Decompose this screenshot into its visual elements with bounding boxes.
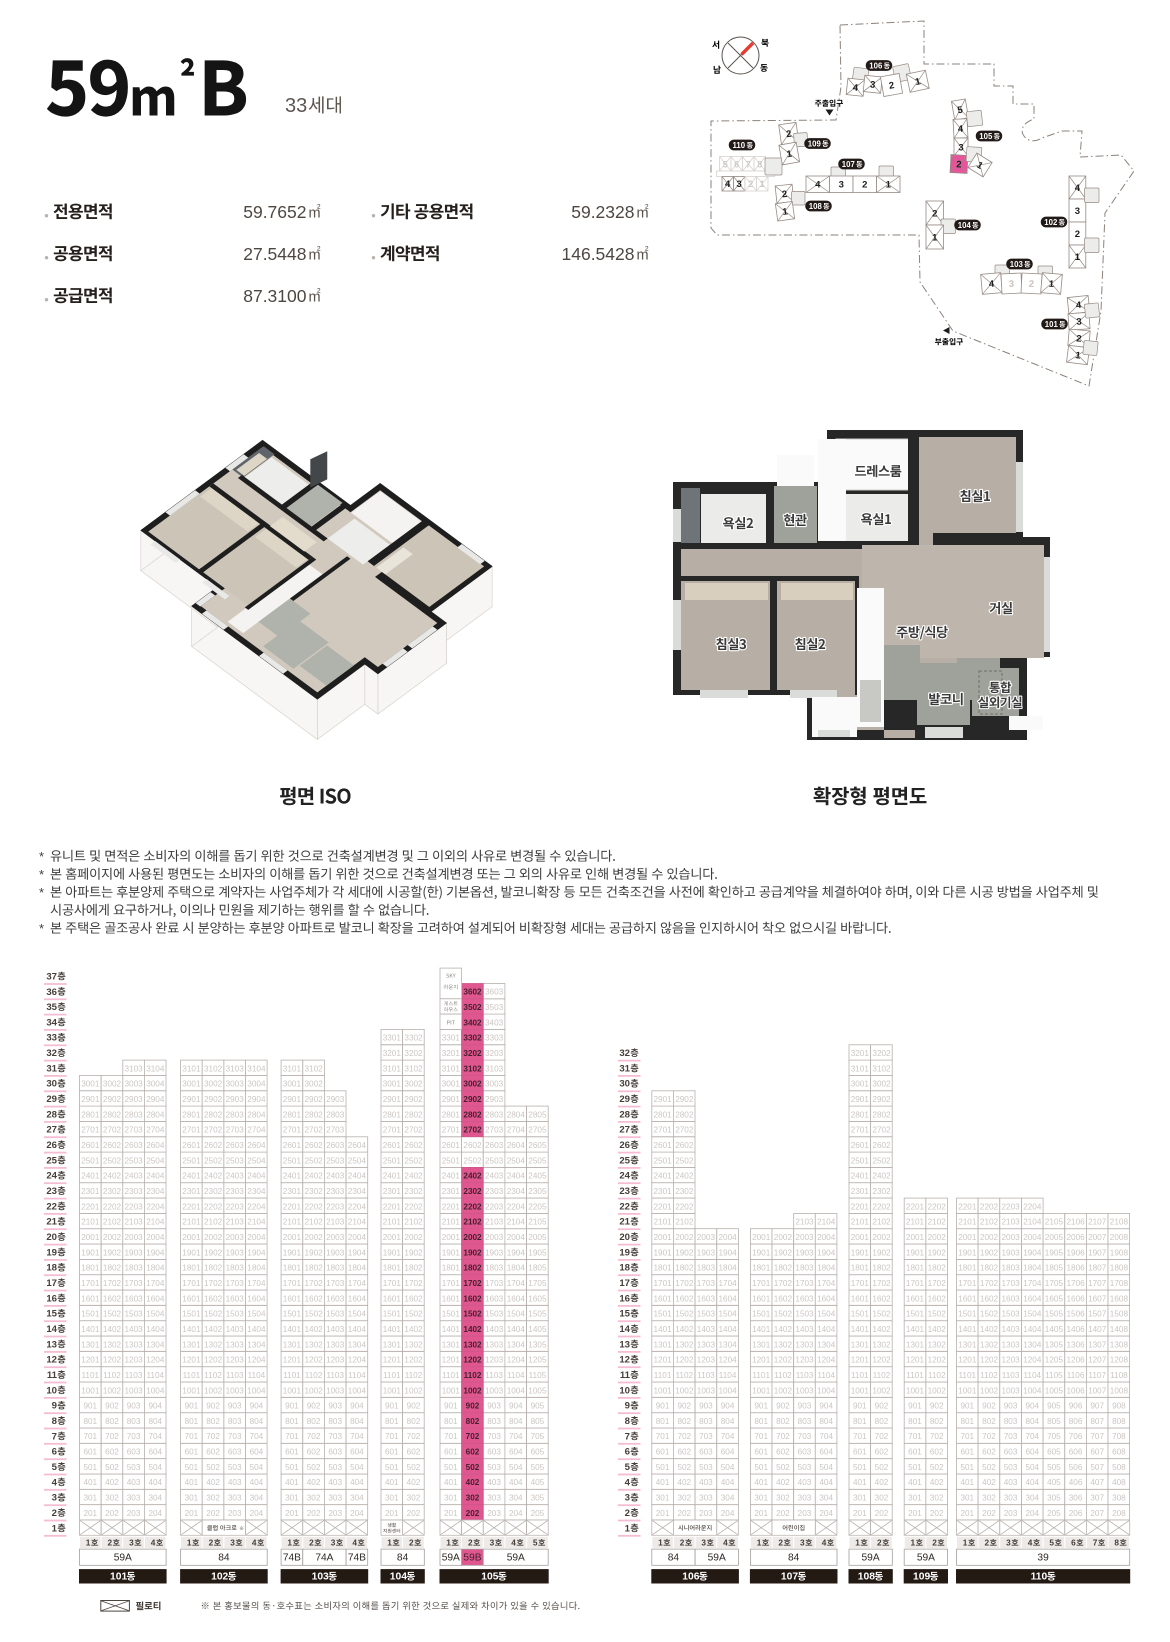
svg-text:1203: 1203 xyxy=(485,1356,504,1365)
svg-text:2601: 2601 xyxy=(182,1141,201,1150)
svg-text:2: 2 xyxy=(1075,229,1080,240)
svg-text:1801: 1801 xyxy=(653,1264,672,1273)
svg-text:1904: 1904 xyxy=(1023,1248,1042,1257)
svg-text:59A: 59A xyxy=(507,1553,525,1564)
svg-text:401: 401 xyxy=(754,1478,768,1487)
svg-text:5: 5 xyxy=(723,160,728,170)
svg-text:1: 1 xyxy=(387,1538,392,1548)
svg-text:508: 508 xyxy=(1112,1463,1126,1472)
svg-text:201: 201 xyxy=(656,1509,670,1518)
svg-text:1703: 1703 xyxy=(124,1279,143,1288)
svg-text:1: 1 xyxy=(910,1538,915,1548)
svg-text:1: 1 xyxy=(625,1523,631,1534)
svg-text:1404: 1404 xyxy=(348,1325,367,1334)
svg-text:2501: 2501 xyxy=(442,1156,461,1165)
svg-text:1501: 1501 xyxy=(958,1310,977,1319)
svg-text:2303: 2303 xyxy=(485,1187,504,1196)
svg-text:10: 10 xyxy=(619,1385,630,1396)
svg-text:74B: 74B xyxy=(348,1553,366,1564)
svg-text:2403: 2403 xyxy=(226,1172,245,1181)
svg-text:2602: 2602 xyxy=(404,1141,423,1150)
svg-text:301: 301 xyxy=(444,1494,458,1503)
svg-text:2201: 2201 xyxy=(182,1202,201,1211)
svg-text:305: 305 xyxy=(1047,1494,1061,1503)
svg-text:1304: 1304 xyxy=(146,1340,165,1349)
svg-text:202: 202 xyxy=(677,1509,691,1518)
svg-text:1304: 1304 xyxy=(718,1340,737,1349)
svg-text:304: 304 xyxy=(509,1494,523,1503)
svg-text:1604: 1604 xyxy=(718,1294,737,1303)
svg-text:2301: 2301 xyxy=(182,1187,201,1196)
svg-text:504: 504 xyxy=(509,1463,523,1472)
svg-text:2803: 2803 xyxy=(326,1110,345,1119)
svg-text:2202: 2202 xyxy=(463,1202,482,1211)
svg-text:202: 202 xyxy=(875,1509,889,1518)
svg-text:501: 501 xyxy=(83,1463,97,1472)
svg-text:1601: 1601 xyxy=(283,1294,302,1303)
svg-text:1104: 1104 xyxy=(348,1371,366,1380)
svg-text:1803: 1803 xyxy=(124,1264,143,1273)
svg-text:1403: 1403 xyxy=(226,1325,245,1334)
svg-text:1504: 1504 xyxy=(507,1310,526,1319)
svg-text:3002: 3002 xyxy=(872,1080,891,1089)
svg-text:2002: 2002 xyxy=(304,1233,323,1242)
svg-text:3004: 3004 xyxy=(146,1080,165,1089)
svg-text:11: 11 xyxy=(47,1370,58,1381)
svg-text:501: 501 xyxy=(444,1463,458,1472)
svg-text:3202: 3202 xyxy=(463,1049,482,1058)
svg-text:2501: 2501 xyxy=(851,1156,870,1165)
svg-text:901: 901 xyxy=(385,1402,399,1411)
svg-text:*: * xyxy=(39,849,44,864)
svg-text:1908: 1908 xyxy=(1110,1248,1129,1257)
svg-text:601: 601 xyxy=(185,1448,199,1457)
svg-text:2101: 2101 xyxy=(851,1218,870,1227)
svg-text:2502: 2502 xyxy=(204,1156,223,1165)
svg-text:603: 603 xyxy=(127,1448,141,1457)
svg-text:1501: 1501 xyxy=(752,1310,771,1319)
svg-text:1702: 1702 xyxy=(675,1279,694,1288)
svg-text:1001: 1001 xyxy=(283,1386,302,1395)
svg-text:403: 403 xyxy=(798,1478,812,1487)
svg-text:1603: 1603 xyxy=(226,1294,245,1303)
svg-text:402: 402 xyxy=(407,1478,421,1487)
svg-text:201: 201 xyxy=(754,1509,768,1518)
svg-text:803: 803 xyxy=(798,1417,812,1426)
svg-text:1407: 1407 xyxy=(1088,1325,1107,1334)
svg-text:2102: 2102 xyxy=(404,1218,423,1227)
svg-text:3: 3 xyxy=(737,179,742,190)
svg-text:1204: 1204 xyxy=(348,1356,367,1365)
svg-text:1101: 1101 xyxy=(851,1371,869,1380)
svg-text:206: 206 xyxy=(1069,1509,1083,1518)
svg-text:2101: 2101 xyxy=(81,1218,100,1227)
svg-text:202: 202 xyxy=(105,1509,119,1518)
svg-text:2402: 2402 xyxy=(872,1172,891,1181)
svg-text:2002: 2002 xyxy=(774,1233,793,1242)
svg-text:1401: 1401 xyxy=(383,1325,402,1334)
svg-text:702: 702 xyxy=(677,1432,691,1441)
svg-text:105: 105 xyxy=(481,1572,498,1583)
svg-text:704: 704 xyxy=(819,1432,833,1441)
svg-text:1602: 1602 xyxy=(980,1294,999,1303)
svg-text:1903: 1903 xyxy=(697,1248,716,1257)
svg-text:2105: 2105 xyxy=(1045,1218,1064,1227)
svg-text:2302: 2302 xyxy=(675,1187,694,1196)
svg-text:1701: 1701 xyxy=(182,1279,201,1288)
svg-text:2101: 2101 xyxy=(283,1218,302,1227)
svg-text:1502: 1502 xyxy=(675,1310,694,1319)
svg-text:2202: 2202 xyxy=(675,1202,694,1211)
svg-text:4: 4 xyxy=(252,1538,257,1548)
svg-text:1504: 1504 xyxy=(247,1310,266,1319)
svg-text:1003: 1003 xyxy=(326,1386,345,1395)
svg-text:1103: 1103 xyxy=(125,1371,143,1380)
svg-text:1102: 1102 xyxy=(980,1371,998,1380)
svg-text:1705: 1705 xyxy=(528,1279,547,1288)
svg-text:59A: 59A xyxy=(708,1553,726,1564)
svg-text:1306: 1306 xyxy=(1066,1340,1085,1349)
svg-text:1501: 1501 xyxy=(851,1310,870,1319)
svg-text:33: 33 xyxy=(46,1033,57,1044)
svg-text:3101: 3101 xyxy=(442,1064,461,1073)
svg-text:2602: 2602 xyxy=(463,1141,482,1150)
svg-text:704: 704 xyxy=(509,1432,523,1441)
svg-text:1503: 1503 xyxy=(795,1310,814,1319)
svg-text:1702: 1702 xyxy=(463,1279,482,1288)
svg-text:30: 30 xyxy=(46,1079,57,1090)
svg-text:404: 404 xyxy=(819,1478,833,1487)
svg-text:304: 304 xyxy=(1025,1494,1039,1503)
svg-text:1201: 1201 xyxy=(752,1356,771,1365)
svg-text:801: 801 xyxy=(185,1417,199,1426)
svg-text:4: 4 xyxy=(352,1538,357,1548)
svg-text:1103: 1103 xyxy=(796,1371,814,1380)
svg-text:1401: 1401 xyxy=(182,1325,201,1334)
svg-text:2204: 2204 xyxy=(507,1202,526,1211)
svg-text:2401: 2401 xyxy=(81,1172,100,1181)
svg-text:2303: 2303 xyxy=(124,1187,143,1196)
svg-text:1704: 1704 xyxy=(1023,1279,1042,1288)
svg-text:1201: 1201 xyxy=(851,1356,870,1365)
svg-text:2301: 2301 xyxy=(383,1187,402,1196)
svg-text:18: 18 xyxy=(46,1263,57,1274)
svg-text:2304: 2304 xyxy=(507,1187,526,1196)
svg-text:2403: 2403 xyxy=(124,1172,143,1181)
svg-text:3103: 3103 xyxy=(226,1064,245,1073)
svg-text:2904: 2904 xyxy=(146,1095,165,1104)
svg-text:1004: 1004 xyxy=(348,1386,367,1395)
svg-text:2001: 2001 xyxy=(958,1233,977,1242)
svg-text:74B: 74B xyxy=(283,1553,301,1564)
svg-text:703: 703 xyxy=(127,1432,141,1441)
svg-text:1603: 1603 xyxy=(124,1294,143,1303)
svg-text:2801: 2801 xyxy=(851,1110,870,1119)
svg-text:1307: 1307 xyxy=(1088,1340,1107,1349)
svg-text:2: 2 xyxy=(1029,279,1035,290)
svg-text:702: 702 xyxy=(875,1432,889,1441)
svg-text:2202: 2202 xyxy=(928,1202,947,1211)
svg-text:803: 803 xyxy=(328,1417,342,1426)
svg-text:2201: 2201 xyxy=(851,1202,870,1211)
svg-text:503: 503 xyxy=(228,1463,242,1472)
svg-text:3104: 3104 xyxy=(247,1064,266,1073)
svg-text:1801: 1801 xyxy=(752,1264,771,1273)
svg-text:2504: 2504 xyxy=(507,1156,526,1165)
svg-text:2302: 2302 xyxy=(103,1187,122,1196)
svg-text:1807: 1807 xyxy=(1088,1264,1107,1273)
svg-text:408: 408 xyxy=(1112,1478,1126,1487)
svg-text:901: 901 xyxy=(960,1402,974,1411)
svg-text:2202: 2202 xyxy=(980,1202,999,1211)
svg-text:505: 505 xyxy=(1047,1463,1061,1472)
svg-text:103: 103 xyxy=(312,1572,329,1583)
svg-text:802: 802 xyxy=(206,1417,220,1426)
svg-text:1302: 1302 xyxy=(928,1340,947,1349)
svg-text:3: 3 xyxy=(490,1538,495,1548)
svg-text:1402: 1402 xyxy=(103,1325,122,1334)
svg-text:2202: 2202 xyxy=(304,1202,323,1211)
svg-text:502: 502 xyxy=(677,1463,691,1472)
svg-text:903: 903 xyxy=(228,1402,242,1411)
svg-text:701: 701 xyxy=(656,1432,670,1441)
svg-text:2601: 2601 xyxy=(442,1141,461,1150)
svg-text:7: 7 xyxy=(746,160,751,170)
svg-text:2703: 2703 xyxy=(124,1126,143,1135)
svg-text:1904: 1904 xyxy=(247,1248,266,1257)
svg-text:1804: 1804 xyxy=(817,1264,836,1273)
svg-text:2: 2 xyxy=(209,1538,214,1548)
svg-text:1303: 1303 xyxy=(1001,1340,1020,1349)
svg-text:2001: 2001 xyxy=(851,1233,870,1242)
svg-text:2704: 2704 xyxy=(507,1126,526,1135)
svg-text:2401: 2401 xyxy=(383,1172,402,1181)
svg-text:1405: 1405 xyxy=(1045,1325,1064,1334)
svg-text:4: 4 xyxy=(815,180,821,191)
svg-text:1802: 1802 xyxy=(675,1264,694,1273)
svg-text:1503: 1503 xyxy=(697,1310,716,1319)
svg-text:4: 4 xyxy=(151,1538,156,1548)
svg-text:1101: 1101 xyxy=(654,1371,672,1380)
svg-text:14: 14 xyxy=(619,1324,630,1335)
svg-text:2102: 2102 xyxy=(675,1218,694,1227)
svg-text:301: 301 xyxy=(754,1494,768,1503)
svg-text:1102: 1102 xyxy=(873,1371,891,1380)
svg-text:703: 703 xyxy=(228,1432,242,1441)
svg-text:602: 602 xyxy=(105,1448,119,1457)
svg-text:2402: 2402 xyxy=(675,1172,694,1181)
svg-text:1103: 1103 xyxy=(226,1371,244,1380)
svg-text:3004: 3004 xyxy=(247,1080,266,1089)
svg-text:2: 2 xyxy=(309,1538,314,1548)
svg-text:502: 502 xyxy=(206,1463,220,1472)
svg-text:3202: 3202 xyxy=(404,1049,423,1058)
svg-text:1303: 1303 xyxy=(326,1340,345,1349)
svg-text:2103: 2103 xyxy=(485,1218,504,1227)
svg-text:1: 1 xyxy=(1075,252,1081,263)
svg-text:1904: 1904 xyxy=(817,1248,836,1257)
svg-text:1001: 1001 xyxy=(383,1386,402,1395)
svg-text:2901: 2901 xyxy=(81,1095,100,1104)
svg-text:3402: 3402 xyxy=(463,1018,482,1027)
svg-text:503: 503 xyxy=(1004,1463,1018,1472)
svg-text:701: 701 xyxy=(83,1432,97,1441)
svg-text:1002: 1002 xyxy=(463,1386,482,1395)
svg-text:1703: 1703 xyxy=(1001,1279,1020,1288)
svg-text:401: 401 xyxy=(83,1478,97,1487)
svg-text:1703: 1703 xyxy=(795,1279,814,1288)
svg-text:803: 803 xyxy=(127,1417,141,1426)
svg-text:1102: 1102 xyxy=(405,1371,423,1380)
svg-text:1006: 1006 xyxy=(1066,1386,1085,1395)
svg-text:804: 804 xyxy=(350,1417,364,1426)
svg-text:204: 204 xyxy=(721,1509,735,1518)
svg-text:1403: 1403 xyxy=(124,1325,143,1334)
svg-text:702: 702 xyxy=(105,1432,119,1441)
svg-text:2: 2 xyxy=(778,1538,783,1548)
svg-text:1604: 1604 xyxy=(348,1294,367,1303)
svg-text:108: 108 xyxy=(809,202,823,211)
svg-text:5: 5 xyxy=(625,1462,631,1473)
svg-text:702: 702 xyxy=(407,1432,421,1441)
svg-text:1802: 1802 xyxy=(463,1264,482,1273)
svg-text:27.5448: 27.5448 xyxy=(243,244,306,264)
svg-text:502: 502 xyxy=(982,1463,996,1472)
svg-text:701: 701 xyxy=(444,1432,458,1441)
svg-text:1905: 1905 xyxy=(528,1248,547,1257)
svg-text:1001: 1001 xyxy=(182,1386,201,1395)
svg-text:1202: 1202 xyxy=(404,1356,423,1365)
svg-text:2: 2 xyxy=(984,1538,989,1548)
svg-text:2601: 2601 xyxy=(283,1141,302,1150)
svg-text:2201: 2201 xyxy=(653,1202,672,1211)
svg-text:2903: 2903 xyxy=(326,1095,345,1104)
svg-text:8: 8 xyxy=(52,1416,58,1427)
svg-text:203: 203 xyxy=(699,1509,713,1518)
svg-text:1001: 1001 xyxy=(958,1386,977,1395)
svg-text:1805: 1805 xyxy=(528,1264,547,1273)
svg-text:1402: 1402 xyxy=(774,1325,793,1334)
svg-text:905: 905 xyxy=(1047,1402,1061,1411)
svg-text:3001: 3001 xyxy=(383,1080,402,1089)
svg-text:7: 7 xyxy=(52,1431,57,1442)
svg-text:1002: 1002 xyxy=(928,1386,947,1395)
svg-text:109: 109 xyxy=(808,139,822,148)
svg-text:21: 21 xyxy=(619,1217,630,1228)
svg-text:702: 702 xyxy=(206,1432,220,1441)
svg-text:2101: 2101 xyxy=(906,1218,925,1227)
svg-text:306: 306 xyxy=(1069,1494,1083,1503)
svg-text:1001: 1001 xyxy=(851,1386,870,1395)
svg-text:2304: 2304 xyxy=(146,1187,165,1196)
svg-text:1304: 1304 xyxy=(1023,1340,1042,1349)
svg-text:2103: 2103 xyxy=(1001,1218,1020,1227)
svg-text:302: 302 xyxy=(875,1494,889,1503)
svg-text:2603: 2603 xyxy=(485,1141,504,1150)
svg-text:2601: 2601 xyxy=(81,1141,100,1150)
svg-text:1204: 1204 xyxy=(146,1356,165,1365)
svg-text:1701: 1701 xyxy=(752,1279,771,1288)
svg-text:303: 303 xyxy=(487,1494,501,1503)
svg-text:2802: 2802 xyxy=(404,1110,423,1119)
svg-text:1601: 1601 xyxy=(958,1294,977,1303)
svg-text:1604: 1604 xyxy=(146,1294,165,1303)
svg-text:59A: 59A xyxy=(114,1553,132,1564)
svg-text:24: 24 xyxy=(619,1171,630,1182)
svg-text:203: 203 xyxy=(228,1509,242,1518)
svg-text:201: 201 xyxy=(960,1509,974,1518)
svg-text:903: 903 xyxy=(1004,1402,1018,1411)
svg-text:1101: 1101 xyxy=(958,1371,976,1380)
svg-text:59A: 59A xyxy=(917,1553,935,1564)
svg-text:801: 801 xyxy=(908,1417,922,1426)
svg-text:505: 505 xyxy=(531,1463,545,1472)
svg-text:1604: 1604 xyxy=(817,1294,836,1303)
svg-text:708: 708 xyxy=(1112,1432,1126,1441)
svg-text:603: 603 xyxy=(228,1448,242,1457)
svg-text:2002: 2002 xyxy=(204,1233,223,1242)
svg-text:105: 105 xyxy=(979,132,993,141)
svg-text:2805: 2805 xyxy=(528,1110,547,1119)
svg-text:802: 802 xyxy=(407,1417,421,1426)
svg-text:1202: 1202 xyxy=(103,1356,122,1365)
svg-text:26: 26 xyxy=(619,1140,630,1151)
svg-text:3002: 3002 xyxy=(204,1080,223,1089)
svg-text:1603: 1603 xyxy=(1001,1294,1020,1303)
svg-text:84: 84 xyxy=(668,1553,680,1564)
svg-text:1304: 1304 xyxy=(348,1340,367,1349)
svg-text:1903: 1903 xyxy=(124,1248,143,1257)
svg-text:3001: 3001 xyxy=(81,1080,100,1089)
svg-text:1106: 1106 xyxy=(1067,1371,1085,1380)
svg-text:402: 402 xyxy=(307,1478,321,1487)
svg-text:1703: 1703 xyxy=(697,1279,716,1288)
svg-text:902: 902 xyxy=(105,1402,119,1411)
svg-text:1504: 1504 xyxy=(817,1310,836,1319)
svg-text:104: 104 xyxy=(390,1572,407,1583)
svg-text:2503: 2503 xyxy=(326,1156,345,1165)
svg-text:1008: 1008 xyxy=(1110,1386,1129,1395)
svg-text:3502: 3502 xyxy=(463,1003,482,1012)
svg-text:2101: 2101 xyxy=(383,1218,402,1227)
svg-text:804: 804 xyxy=(250,1417,264,1426)
svg-text:403: 403 xyxy=(228,1478,242,1487)
svg-text:2104: 2104 xyxy=(817,1218,836,1227)
svg-text:2003: 2003 xyxy=(485,1233,504,1242)
svg-text:1704: 1704 xyxy=(817,1279,836,1288)
svg-text:704: 704 xyxy=(148,1432,162,1441)
svg-text:1004: 1004 xyxy=(817,1386,836,1395)
svg-text:1308: 1308 xyxy=(1110,1340,1129,1349)
svg-text:703: 703 xyxy=(328,1432,342,1441)
svg-text:1402: 1402 xyxy=(675,1325,694,1334)
svg-text:2203: 2203 xyxy=(485,1202,504,1211)
svg-text:902: 902 xyxy=(930,1402,944,1411)
svg-text:1303: 1303 xyxy=(795,1340,814,1349)
svg-text:1507: 1507 xyxy=(1088,1310,1107,1319)
svg-text:1205: 1205 xyxy=(528,1356,547,1365)
svg-text:2001: 2001 xyxy=(81,1233,100,1242)
svg-text:1704: 1704 xyxy=(718,1279,737,1288)
svg-text:1202: 1202 xyxy=(304,1356,323,1365)
svg-text:2803: 2803 xyxy=(124,1110,143,1119)
svg-text:1904: 1904 xyxy=(718,1248,737,1257)
svg-text:1404: 1404 xyxy=(1023,1325,1042,1334)
svg-text:2007: 2007 xyxy=(1088,1233,1107,1242)
svg-text:2402: 2402 xyxy=(103,1172,122,1181)
svg-text:801: 801 xyxy=(754,1417,768,1426)
svg-text:2802: 2802 xyxy=(103,1110,122,1119)
